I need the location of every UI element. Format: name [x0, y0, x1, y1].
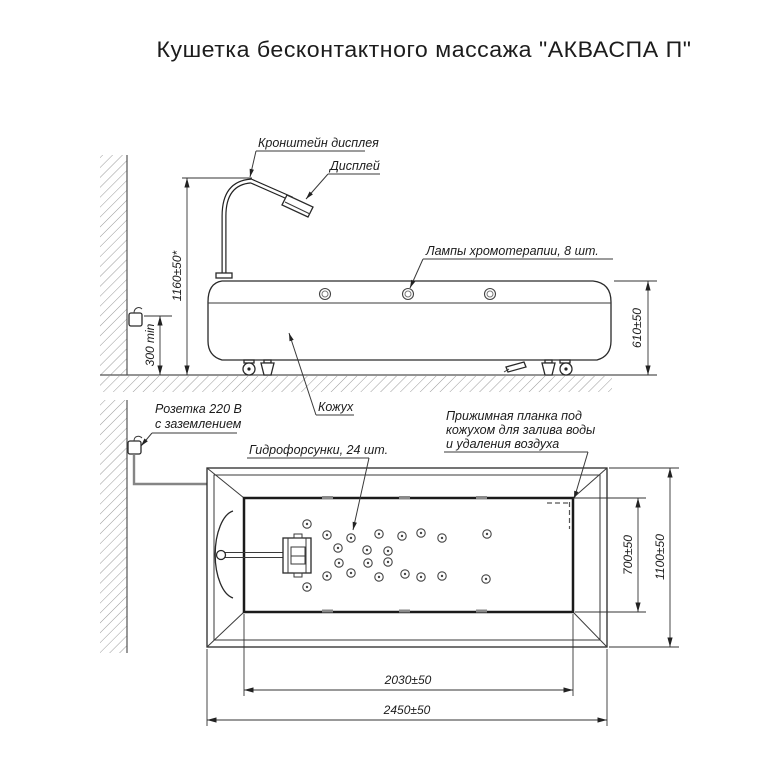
label-nozzles: Гидрофорсунки, 24 шт. — [249, 443, 388, 457]
rim-tick-top — [476, 496, 487, 499]
nozzle-dot — [378, 533, 380, 535]
caster-hub-right — [564, 367, 567, 370]
rim-tick-top — [399, 496, 410, 499]
socket-side — [129, 308, 142, 326]
dim-overall-length: 2450±50 — [383, 703, 431, 717]
page-title: Кушетка бесконтактного массажа "АКВАСПА … — [157, 37, 692, 62]
shaft-hub — [217, 551, 226, 560]
legs — [243, 360, 572, 375]
nozzle-dot — [367, 562, 369, 564]
technical-drawing: Кушетка бесконтактного массажа "АКВАСПА … — [0, 0, 768, 768]
nozzle-dot — [485, 578, 487, 580]
wall-hatch-plan — [100, 400, 127, 653]
chromotherapy-lamp — [485, 289, 496, 300]
nozzle-dot — [366, 549, 368, 551]
drain-valve — [506, 362, 526, 372]
rim-tick-bottom — [476, 610, 487, 613]
display-arm — [216, 181, 313, 278]
floor-hatch — [100, 376, 612, 392]
nozzle-dot — [420, 576, 422, 578]
nozzle-dot — [306, 523, 308, 525]
rim-corner-tr — [573, 468, 607, 498]
nozzle-dot — [337, 547, 339, 549]
nozzle-dot — [420, 532, 422, 534]
nozzle-carriage — [283, 534, 311, 577]
dim-socket-height: 300 min — [143, 323, 157, 366]
rim-tick-bottom — [399, 610, 410, 613]
nozzle-dot — [441, 575, 443, 577]
plan-view: 2030±50 2450±50 700±50 1100±50 — [100, 400, 679, 726]
nozzle-dot — [401, 535, 403, 537]
label-socket-line1: Розетка 220 В — [155, 402, 242, 416]
dim-610: 610±50 — [614, 281, 657, 375]
dim-overall-width: 1100±50 — [653, 534, 667, 580]
nozzle-dot — [486, 533, 488, 535]
rim-tick-bottom — [322, 610, 333, 613]
dim-basin-width: 700±50 — [621, 535, 635, 575]
dim-height-display: 1160±50* — [170, 250, 184, 301]
side-labels: Кронштейн дисплея Дисплей Лампы хромотер… — [248, 136, 613, 415]
label-pressure-bar-1: Прижимная планка под — [446, 409, 582, 423]
nozzle-dot — [387, 550, 389, 552]
arm-flange — [216, 273, 232, 278]
dim-2450: 2450±50 — [207, 649, 607, 726]
dim-700: 700±50 — [575, 498, 646, 612]
dim-300min: 300 min — [143, 316, 172, 375]
drawing-page: Кушетка бесконтактного массажа "АКВАСПА … — [0, 0, 768, 768]
dim-2030: 2030±50 — [244, 614, 573, 696]
nozzle-dot — [378, 576, 380, 578]
nozzle-dot — [350, 537, 352, 539]
nozzle-dot — [387, 561, 389, 563]
rim-corner-bl — [207, 612, 244, 647]
foot-left — [261, 363, 274, 375]
chromotherapy-lamp — [403, 289, 414, 300]
label-casing: Кожух — [318, 400, 354, 414]
label-display-bracket: Кронштейн дисплея — [258, 136, 379, 150]
side-view: 1160±50* 300 min 610±50 Кронштейн диспле… — [100, 136, 657, 415]
label-pressure-bar-3: и удаления воздуха — [446, 437, 559, 451]
label-display: Дисплей — [328, 159, 380, 173]
dim-1100: 1100±50 — [609, 468, 679, 647]
nozzle-dot — [404, 573, 406, 575]
caster-hub — [247, 367, 250, 370]
rim-tick-top — [322, 496, 333, 499]
rim-corner-br — [573, 612, 607, 647]
foot-right — [542, 363, 555, 375]
label-pressure-bar-2: кожухом для залива воды — [446, 423, 595, 437]
nozzle-dot — [326, 534, 328, 536]
nozzle-dot — [306, 586, 308, 588]
chromotherapy-lamp — [320, 289, 331, 300]
label-lamps: Лампы хромотерапии, 8 шт. — [425, 244, 599, 258]
wall-hatch — [100, 155, 127, 375]
nozzle-dot — [441, 537, 443, 539]
power-cable — [134, 455, 207, 484]
dim-couch-height: 610±50 — [630, 308, 644, 348]
nozzle-dot — [338, 562, 340, 564]
nozzle-dot — [326, 575, 328, 577]
label-socket-line2: с заземлением — [155, 417, 242, 431]
dim-basin-length: 2030±50 — [384, 673, 432, 687]
rim-corner-tl — [207, 468, 244, 498]
nozzle-dot — [350, 572, 352, 574]
socket-plan — [128, 436, 207, 484]
